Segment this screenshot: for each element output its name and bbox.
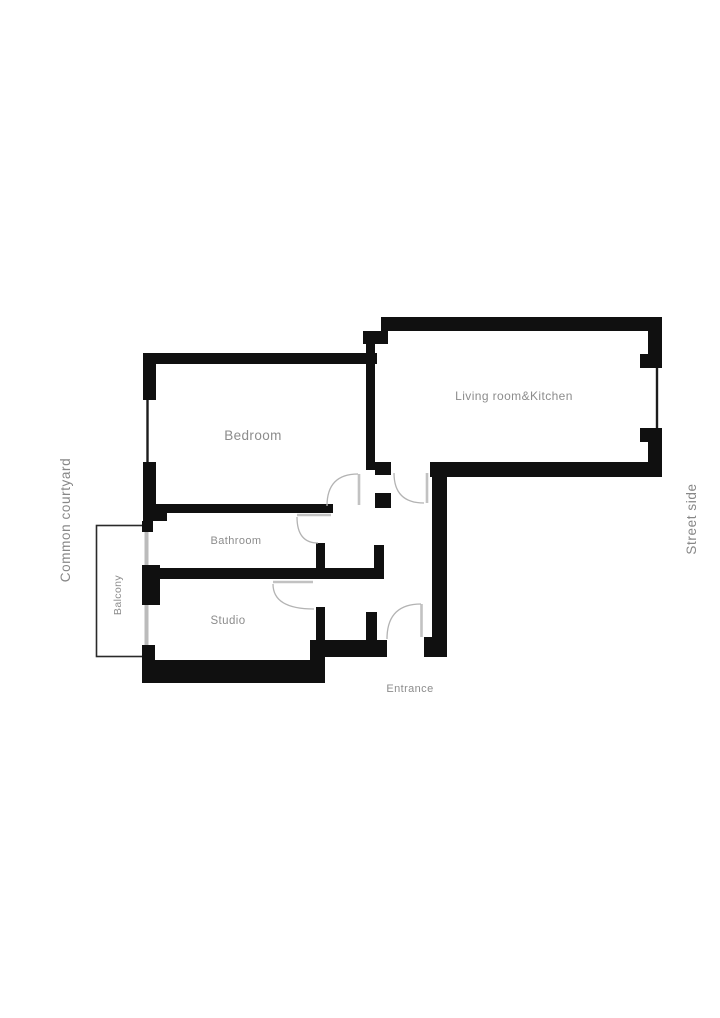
- wall-segment: [316, 543, 325, 570]
- wall-segment: [142, 521, 153, 532]
- wall-segment: [366, 612, 377, 640]
- wall-segment: [142, 660, 325, 683]
- wall-segment: [363, 331, 388, 344]
- wall-segment: [316, 607, 325, 640]
- wall-segment: [430, 462, 662, 477]
- wall-segment: [424, 637, 447, 657]
- common-courtyard-label: Common courtyard: [58, 458, 73, 582]
- wall-segment: [153, 568, 383, 579]
- floor-plan-page: Bedroom Living room&Kitchen Bathroom Stu…: [0, 0, 720, 1018]
- wall-segment: [325, 640, 387, 657]
- bedroom-door-arc: [327, 474, 358, 506]
- bathroom-door-arc: [297, 517, 318, 543]
- studio-door-arc: [273, 584, 314, 609]
- floor-plan-drawing: Bedroom Living room&Kitchen Bathroom Stu…: [0, 0, 720, 1018]
- living-room-label: Living room&Kitchen: [455, 389, 573, 403]
- wall-segment: [640, 428, 648, 442]
- walls-layer: [142, 317, 662, 683]
- bathroom-label: Bathroom: [211, 535, 262, 547]
- wall-segment: [366, 344, 375, 470]
- wall-segment: [310, 640, 325, 683]
- wall-segment: [381, 317, 662, 331]
- doors-layer: [273, 473, 427, 639]
- wall-segment: [375, 462, 391, 475]
- bedroom-label: Bedroom: [224, 428, 282, 443]
- wall-segment: [375, 493, 391, 508]
- studio-label: Studio: [210, 615, 245, 627]
- street-side-label: Street side: [684, 483, 699, 554]
- entrance-label: Entrance: [386, 683, 433, 695]
- wall-segment: [640, 354, 648, 368]
- wall-segment: [374, 545, 384, 579]
- entrance-door-arc: [387, 604, 421, 639]
- wall-segment: [432, 462, 447, 657]
- wall-segment: [143, 353, 377, 364]
- wall-segment: [143, 353, 156, 400]
- wall-segment: [648, 317, 662, 368]
- balcony-label: Balcony: [112, 575, 124, 616]
- living-room-door-arc: [394, 473, 424, 503]
- wall-segment: [156, 504, 333, 513]
